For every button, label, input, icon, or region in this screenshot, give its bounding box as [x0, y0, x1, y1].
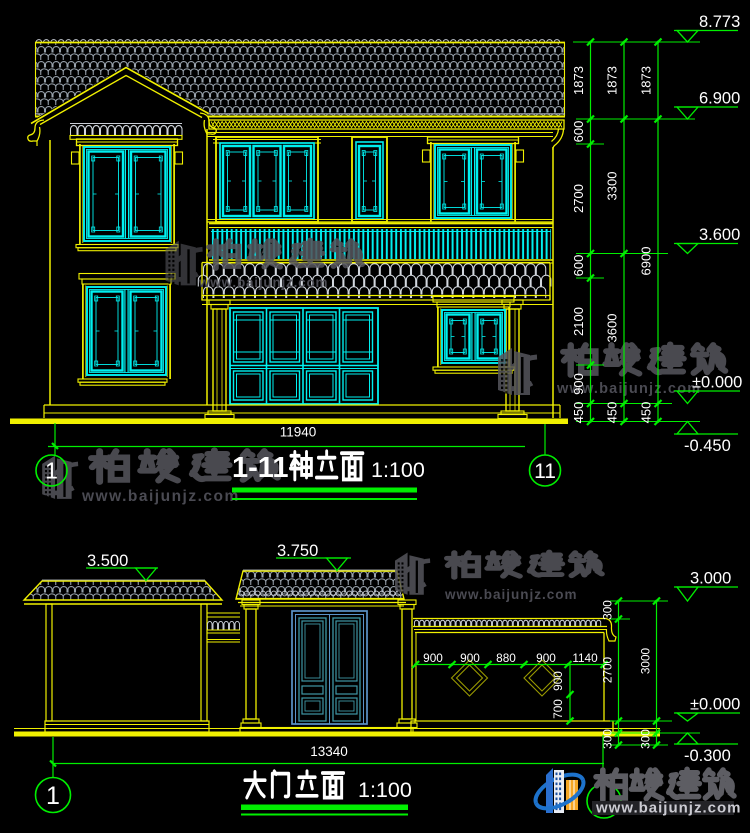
svg-text:700: 700: [551, 699, 565, 719]
svg-text:3300: 3300: [605, 172, 620, 201]
svg-text:3600: 3600: [605, 314, 620, 343]
svg-text:1:100: 1:100: [358, 778, 412, 802]
svg-text:11: 11: [534, 460, 556, 483]
svg-text:900: 900: [423, 651, 443, 665]
svg-text:2100: 2100: [571, 307, 586, 336]
svg-text:1: 1: [45, 458, 58, 484]
svg-text:1-11: 1-11: [232, 452, 288, 484]
svg-text:www.baijunjz.com: www.baijunjz.com: [198, 275, 328, 290]
svg-text:6900: 6900: [639, 247, 654, 276]
svg-text:1873: 1873: [605, 66, 620, 95]
svg-text:450: 450: [605, 402, 620, 424]
svg-text:300: 300: [639, 729, 653, 749]
svg-text:11940: 11940: [280, 425, 317, 440]
svg-text:13340: 13340: [310, 744, 348, 759]
svg-text:1873: 1873: [571, 66, 586, 95]
svg-text:www.baijunjz.com: www.baijunjz.com: [81, 488, 240, 505]
svg-text:1: 1: [46, 782, 60, 810]
svg-text:900: 900: [551, 671, 565, 691]
svg-text:±0.000: ±0.000: [692, 374, 742, 392]
svg-text:www.baijunjz.com: www.baijunjz.com: [444, 587, 578, 602]
svg-text:1140: 1140: [572, 651, 598, 665]
svg-text:6.900: 6.900: [699, 90, 740, 108]
svg-text:3.000: 3.000: [690, 570, 731, 588]
svg-text:3.750: 3.750: [277, 542, 318, 560]
svg-text:3000: 3000: [639, 647, 653, 674]
svg-text:8.773: 8.773: [699, 13, 740, 31]
svg-text:2700: 2700: [601, 656, 615, 683]
svg-text:900: 900: [460, 651, 480, 665]
svg-text:900: 900: [536, 651, 556, 665]
svg-text:300: 300: [601, 600, 615, 620]
svg-text:600: 600: [571, 255, 586, 277]
svg-text:1873: 1873: [639, 66, 654, 95]
svg-text:900: 900: [571, 373, 586, 395]
svg-text:450: 450: [639, 402, 654, 424]
svg-text:www.baijunjz.com: www.baijunjz.com: [595, 800, 741, 817]
svg-text:450: 450: [571, 402, 586, 424]
svg-text:1:100: 1:100: [371, 458, 425, 482]
svg-text:600: 600: [571, 121, 586, 143]
svg-text:3.600: 3.600: [699, 226, 740, 244]
svg-text:880: 880: [496, 651, 516, 665]
svg-text:-0.450: -0.450: [684, 437, 731, 455]
svg-text:±0.000: ±0.000: [690, 696, 740, 714]
svg-text:-0.300: -0.300: [684, 747, 731, 765]
svg-text:3.500: 3.500: [87, 552, 128, 570]
svg-text:2700: 2700: [571, 184, 586, 213]
